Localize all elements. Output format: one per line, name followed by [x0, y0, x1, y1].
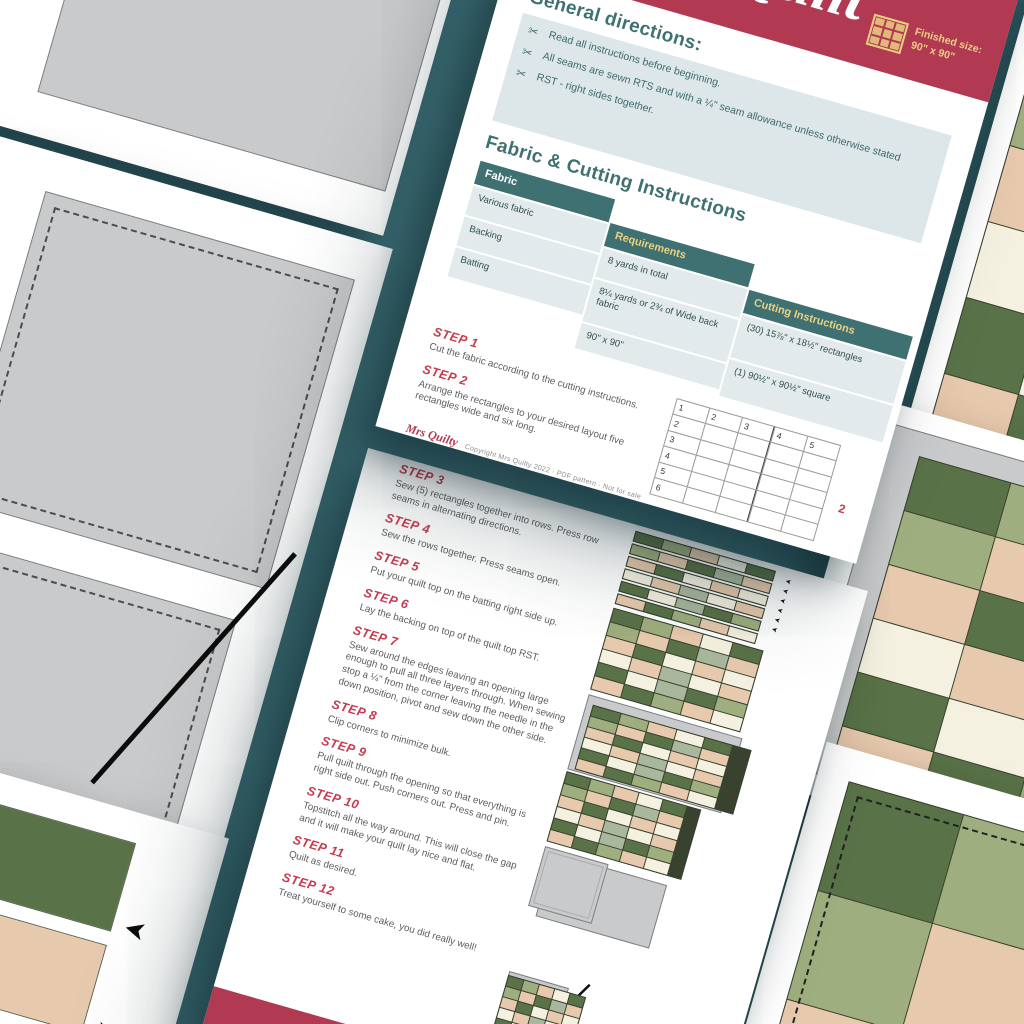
scissors-icon: ✂: [520, 44, 538, 62]
page-number: 2: [837, 501, 847, 516]
stitch-line-border: [0, 207, 339, 573]
arrow-icon: ➤: [776, 607, 784, 615]
finished-size-block: Finished size: 90" x 90": [866, 14, 984, 76]
quilt-sandwich-square: [0, 191, 355, 589]
rotated-stage: ➤➤➤ Quilt suggested fabric skill level: …: [0, 0, 1024, 1024]
press-arrow-icon: ➤: [92, 1016, 120, 1024]
scissors-icon: ✂: [526, 23, 544, 41]
arrow-icon: ➤: [782, 588, 790, 596]
arrow-icon: ➤: [779, 597, 787, 605]
fabric-strip-cell: [0, 799, 135, 931]
footer-brand: Mrs Quilty: [404, 421, 460, 450]
quilt-pattern-mockup-scene: ➤➤➤ Quilt suggested fabric skill level: …: [0, 0, 1024, 1024]
finished-size-text: Finished size: 90" x 90": [909, 26, 983, 71]
backing-sheet-graphic: [37, 0, 445, 192]
brand-logo: Quilt: [730, 0, 873, 31]
quilt-grid-icon: [866, 14, 909, 55]
arrow-icon: ➤: [773, 617, 781, 625]
row-arrows: ➤➤➤➤➤➤: [771, 578, 792, 634]
arrow-icon: ➤: [771, 626, 779, 634]
scissors-icon: ✂: [514, 65, 532, 83]
stitch-line-border: [533, 851, 604, 919]
press-arrow-icon: ➤: [121, 914, 149, 945]
arrow-icon: ➤: [784, 578, 792, 586]
direction-text: All seams are sewn RTS and with a ¼" sea…: [540, 50, 902, 167]
footer-band: www.mrsquilty.com: [192, 986, 714, 1024]
